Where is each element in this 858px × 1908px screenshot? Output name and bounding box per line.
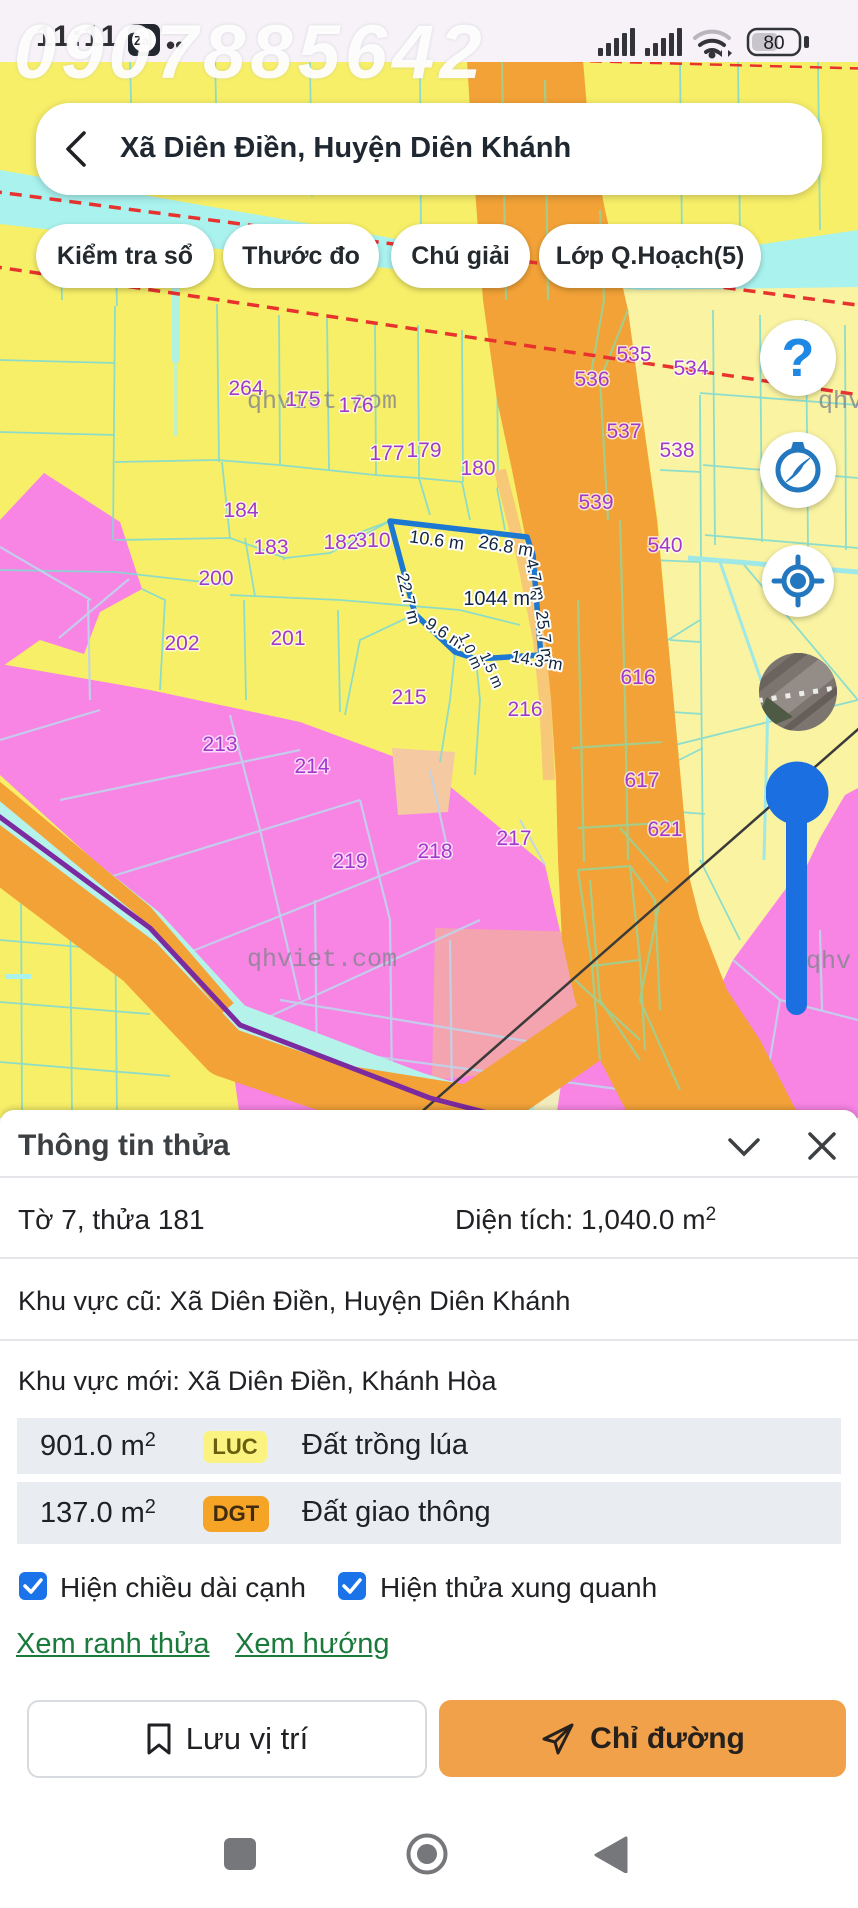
svg-text:538: 538 bbox=[659, 439, 694, 462]
svg-text:qhviet.com: qhviet.com bbox=[247, 945, 397, 974]
svg-text:176: 176 bbox=[338, 394, 373, 417]
svg-text:264: 264 bbox=[228, 377, 263, 400]
svg-text:202: 202 bbox=[164, 632, 199, 655]
svg-text:182: 182 bbox=[323, 531, 358, 554]
svg-text:175: 175 bbox=[285, 388, 320, 411]
svg-text:534: 534 bbox=[673, 357, 708, 380]
svg-text:539: 539 bbox=[578, 491, 613, 514]
svg-text:621: 621 bbox=[647, 818, 682, 841]
svg-text:537: 537 bbox=[606, 420, 641, 443]
svg-text:179: 179 bbox=[406, 439, 441, 462]
svg-text:1044 m²: 1044 m² bbox=[463, 588, 537, 610]
svg-text:616: 616 bbox=[620, 666, 655, 689]
svg-text:183: 183 bbox=[253, 536, 288, 559]
svg-text:80: 80 bbox=[763, 33, 784, 54]
svg-text:213: 213 bbox=[202, 733, 237, 756]
svg-text:184: 184 bbox=[223, 499, 258, 522]
svg-text:540: 540 bbox=[647, 534, 682, 557]
svg-text:219: 219 bbox=[332, 850, 367, 873]
svg-text:201: 201 bbox=[270, 627, 305, 650]
svg-text:qhv: qhv bbox=[818, 387, 858, 416]
svg-text:215: 215 bbox=[391, 686, 426, 709]
svg-text:177: 177 bbox=[369, 442, 404, 465]
svg-text:200: 200 bbox=[198, 567, 233, 590]
svg-text:216: 216 bbox=[507, 698, 542, 721]
svg-text:qhviet.com: qhviet.com bbox=[247, 387, 397, 416]
svg-text:535: 535 bbox=[616, 343, 651, 366]
svg-text:310: 310 bbox=[355, 529, 390, 552]
svg-text:617: 617 bbox=[624, 769, 659, 792]
svg-text:214: 214 bbox=[294, 755, 329, 778]
svg-text:218: 218 bbox=[417, 840, 452, 863]
svg-text:536: 536 bbox=[574, 368, 609, 391]
svg-text:217: 217 bbox=[496, 827, 531, 850]
svg-text:180: 180 bbox=[460, 457, 495, 480]
